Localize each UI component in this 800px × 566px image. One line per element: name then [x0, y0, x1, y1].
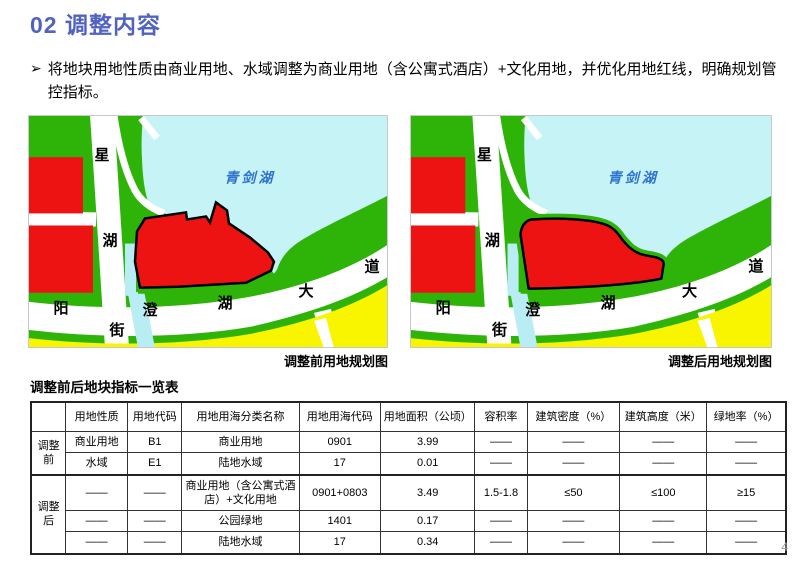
bullet-arrow-icon: ➢: [30, 58, 42, 80]
table-cell: ——: [475, 432, 527, 453]
land-use-map-after: 星湖街阳澄湖大道青剑湖: [410, 115, 772, 348]
table-cell: ——: [620, 511, 707, 532]
table-cell: ——: [475, 511, 527, 532]
road-label-avenue: 道: [748, 258, 763, 276]
table-cell: ——: [128, 511, 182, 532]
table-cell: 0.17: [381, 511, 475, 532]
table-row: ————陆地水域170.34————————: [31, 532, 786, 554]
road-label-avenue: 澄: [525, 301, 541, 319]
table-cell: 商业用地: [182, 432, 299, 453]
row-group-label: 调整后: [31, 475, 66, 554]
table-cell: 0901: [299, 432, 381, 453]
table-header: 用地性质用地代码用地用海分类名称用地用海代码用地面积（公顷）容积率建筑密度（%）…: [31, 402, 786, 432]
road-label-avenue: 阳: [436, 300, 451, 317]
table-cell: 商业用地: [66, 432, 128, 453]
table-cell: 3.49: [381, 475, 475, 511]
road-label-vertical: 街: [491, 321, 507, 339]
table-cell: 商业用地（含公寓式酒店）+文化用地: [182, 475, 299, 511]
table-cell: ——: [527, 453, 620, 475]
header-cell-empty: [31, 402, 66, 432]
red-block-south: [28, 225, 93, 292]
header-cell: 建筑高度（米）: [620, 402, 707, 432]
road-label-avenue: 湖: [601, 295, 616, 312]
table-cell: 17: [299, 532, 381, 554]
table-cell: 0.34: [381, 532, 475, 554]
table-cell: ——: [66, 475, 128, 511]
table-cell: E1: [128, 453, 182, 475]
table-cell: 水域: [66, 453, 128, 475]
table-cell: 1.5-1.8: [475, 475, 527, 511]
table-cell: ——: [475, 453, 527, 475]
table-cell: ——: [128, 475, 182, 511]
table-row: 调整前商业用地B1商业用地09013.99————————: [31, 432, 786, 453]
table-cell: 1401: [299, 511, 381, 532]
table-cell: ——: [620, 453, 707, 475]
road-label-avenue: 湖: [218, 295, 233, 312]
table-cell: 17: [299, 453, 381, 475]
road-label-vertical: 湖: [103, 233, 118, 250]
table-cell: 0.01: [381, 453, 475, 475]
header-cell: 绿地率（%）: [707, 402, 786, 432]
bullet-text: 将地块用地性质由商业用地、水域调整为商业用地（含公寓式酒店）+文化用地，并优化用…: [48, 58, 778, 105]
table-cell: 陆地水域: [182, 453, 299, 475]
road-label-vertical: 街: [109, 321, 125, 339]
canal: [125, 244, 136, 296]
lake-label: 青剑湖: [608, 169, 659, 185]
header-cell: 容积率: [475, 402, 527, 432]
table-cell: ——: [620, 432, 707, 453]
header-cell: 建筑密度（%）: [527, 402, 620, 432]
canal: [508, 244, 519, 296]
table-cell: ——: [475, 532, 527, 554]
table-title: 调整前后地块指标一览表: [30, 376, 179, 396]
road-label-vertical: 湖: [485, 233, 500, 250]
bullet-item: ➢ 将地块用地性质由商业用地、水域调整为商业用地（含公寓式酒店）+文化用地，并优…: [30, 58, 778, 105]
road-label-avenue: 大: [299, 282, 314, 300]
page-number: 4: [781, 540, 788, 554]
table-row: 水域E1陆地水域170.01————————: [31, 453, 786, 475]
table-cell: ——: [66, 511, 128, 532]
road-label-avenue: 大: [682, 282, 697, 300]
row-group-label: 调整前: [31, 432, 66, 475]
red-block-north: [410, 157, 465, 213]
table-cell: ——: [707, 532, 786, 554]
header-cell: 用地面积（公顷）: [381, 402, 475, 432]
header-cell: 用地用海代码: [299, 402, 381, 432]
table-cell: 3.99: [381, 432, 475, 453]
table-cell: ≤100: [620, 475, 707, 511]
table-cell: ——: [707, 511, 786, 532]
table-cell: ——: [527, 532, 620, 554]
map-before: 星湖街阳澄湖大道青剑湖: [28, 115, 388, 348]
table-cell: 陆地水域: [182, 532, 299, 554]
table-cell: 0901+0803: [299, 475, 381, 511]
table-cell: ——: [128, 532, 182, 554]
table-cell: ——: [707, 453, 786, 475]
table-cell: B1: [128, 432, 182, 453]
map-before-caption: 调整前用地规划图: [28, 351, 388, 370]
table-cell: ——: [527, 432, 620, 453]
road-label-avenue: 道: [365, 258, 380, 276]
table-cell: 公园绿地: [182, 511, 299, 532]
road-label-avenue: 阳: [54, 300, 69, 317]
road-label-vertical: 星: [95, 147, 110, 164]
table-cell: ≤50: [527, 475, 620, 511]
red-block-south: [410, 225, 475, 292]
header-cell: 用地代码: [128, 402, 182, 432]
red-block-north: [28, 157, 83, 213]
header-cell: 用地性质: [66, 402, 128, 432]
slide: 02 调整内容 ➢ 将地块用地性质由商业用地、水域调整为商业用地（含公寓式酒店）…: [0, 0, 800, 566]
map-after-caption: 调整后用地规划图: [410, 351, 772, 370]
lake-label: 青剑湖: [225, 169, 276, 185]
table-row: ————公园绿地14010.17————————: [31, 511, 786, 532]
table-cell: ——: [707, 432, 786, 453]
land-use-map-before: 星湖街阳澄湖大道青剑湖: [28, 115, 388, 348]
road-label-vertical: 星: [477, 147, 492, 164]
header-cell: 用地用海分类名称: [182, 402, 299, 432]
table-cell: ——: [66, 532, 128, 554]
indicator-table: 用地性质用地代码用地用海分类名称用地用海代码用地面积（公顷）容积率建筑密度（%）…: [30, 401, 787, 555]
table-cell: ≥15: [707, 475, 786, 511]
road-label-avenue: 澄: [143, 301, 159, 319]
map-after: 星湖街阳澄湖大道青剑湖: [410, 115, 772, 348]
table-cell: ——: [527, 511, 620, 532]
table-row: 调整后————商业用地（含公寓式酒店）+文化用地0901+08033.491.5…: [31, 475, 786, 511]
table-cell: ——: [620, 532, 707, 554]
page-title: 02 调整内容: [30, 6, 161, 40]
